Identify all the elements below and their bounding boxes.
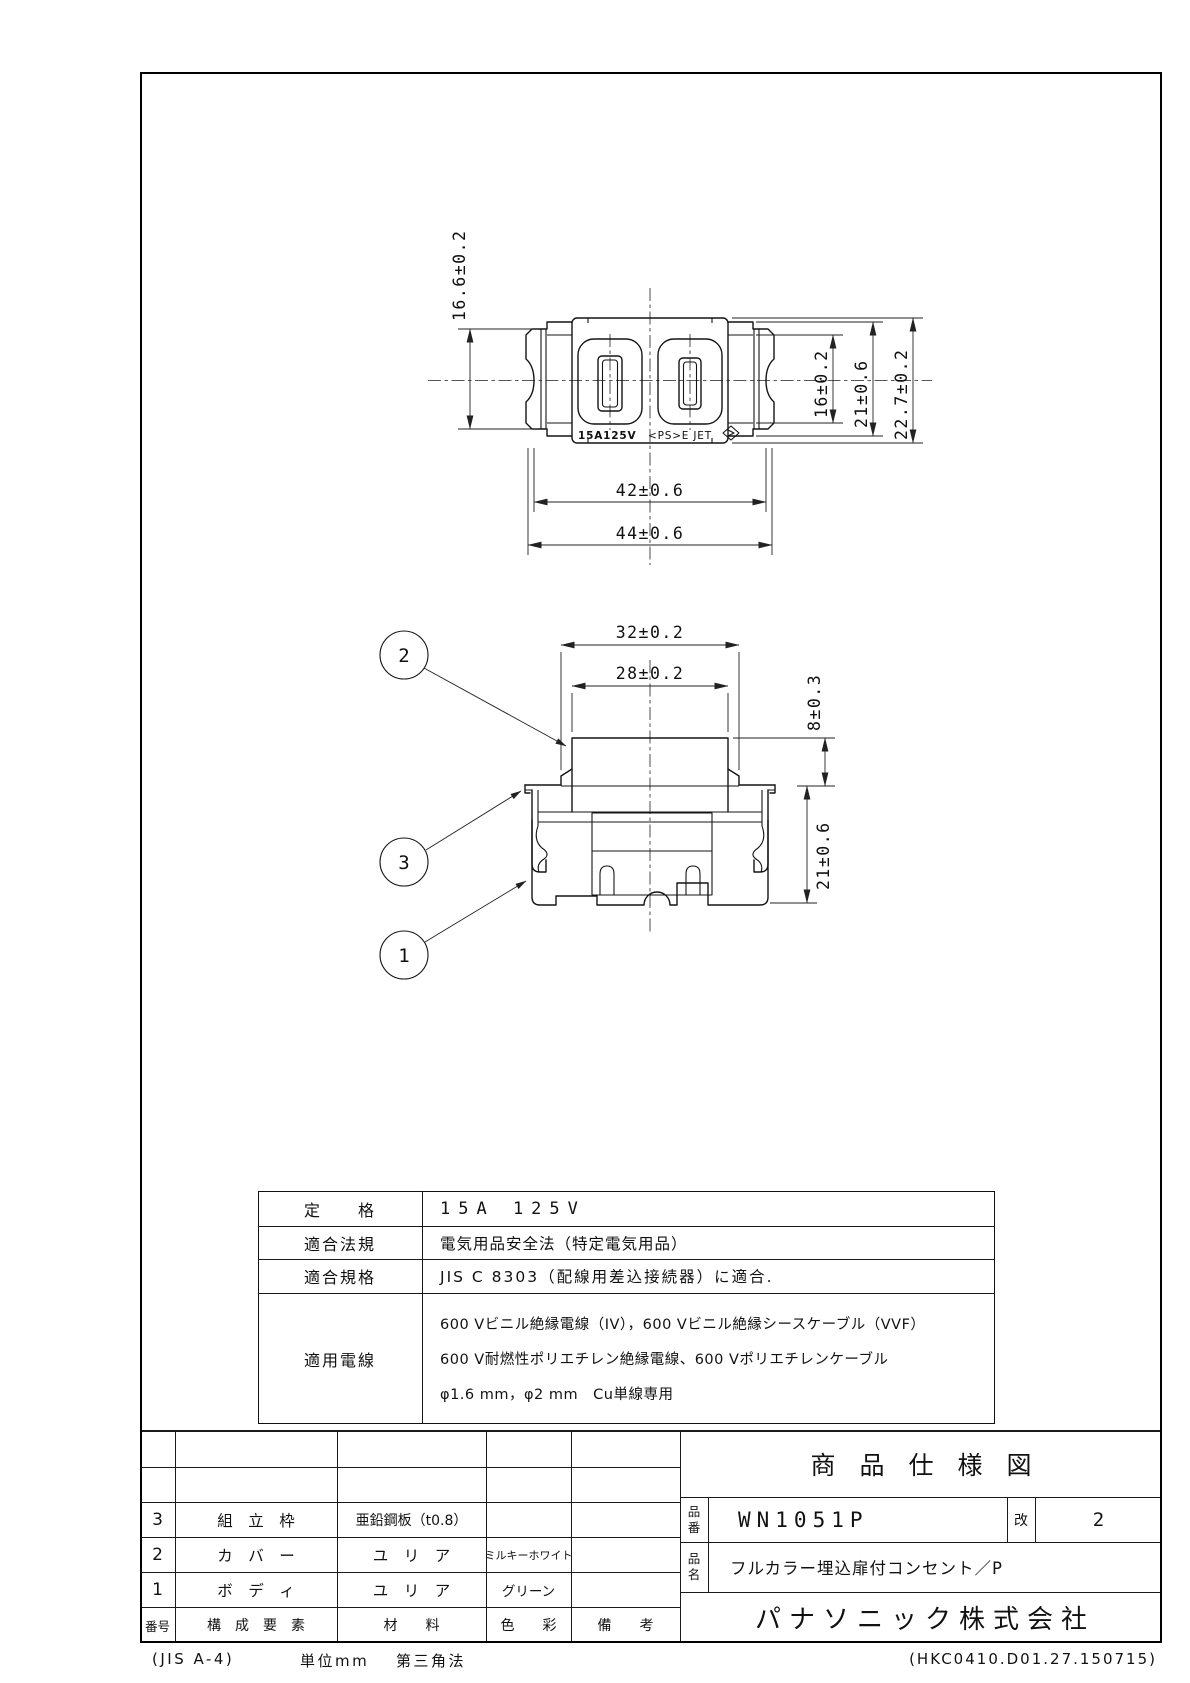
paper-size-note: (JIS A-4) [152,1650,234,1668]
unit-note: 単位mm [300,1650,369,1671]
projection-note: 第三角法 [396,1650,466,1671]
drawing-frame-border [140,72,1162,1643]
document-code: (HKC0410.D01.27.150715) [909,1650,1157,1668]
spec-drawing-sheet: 15A125V <PS>E JET 16.6±0.2 16±0.2 21±0.6 [0,0,1190,1683]
